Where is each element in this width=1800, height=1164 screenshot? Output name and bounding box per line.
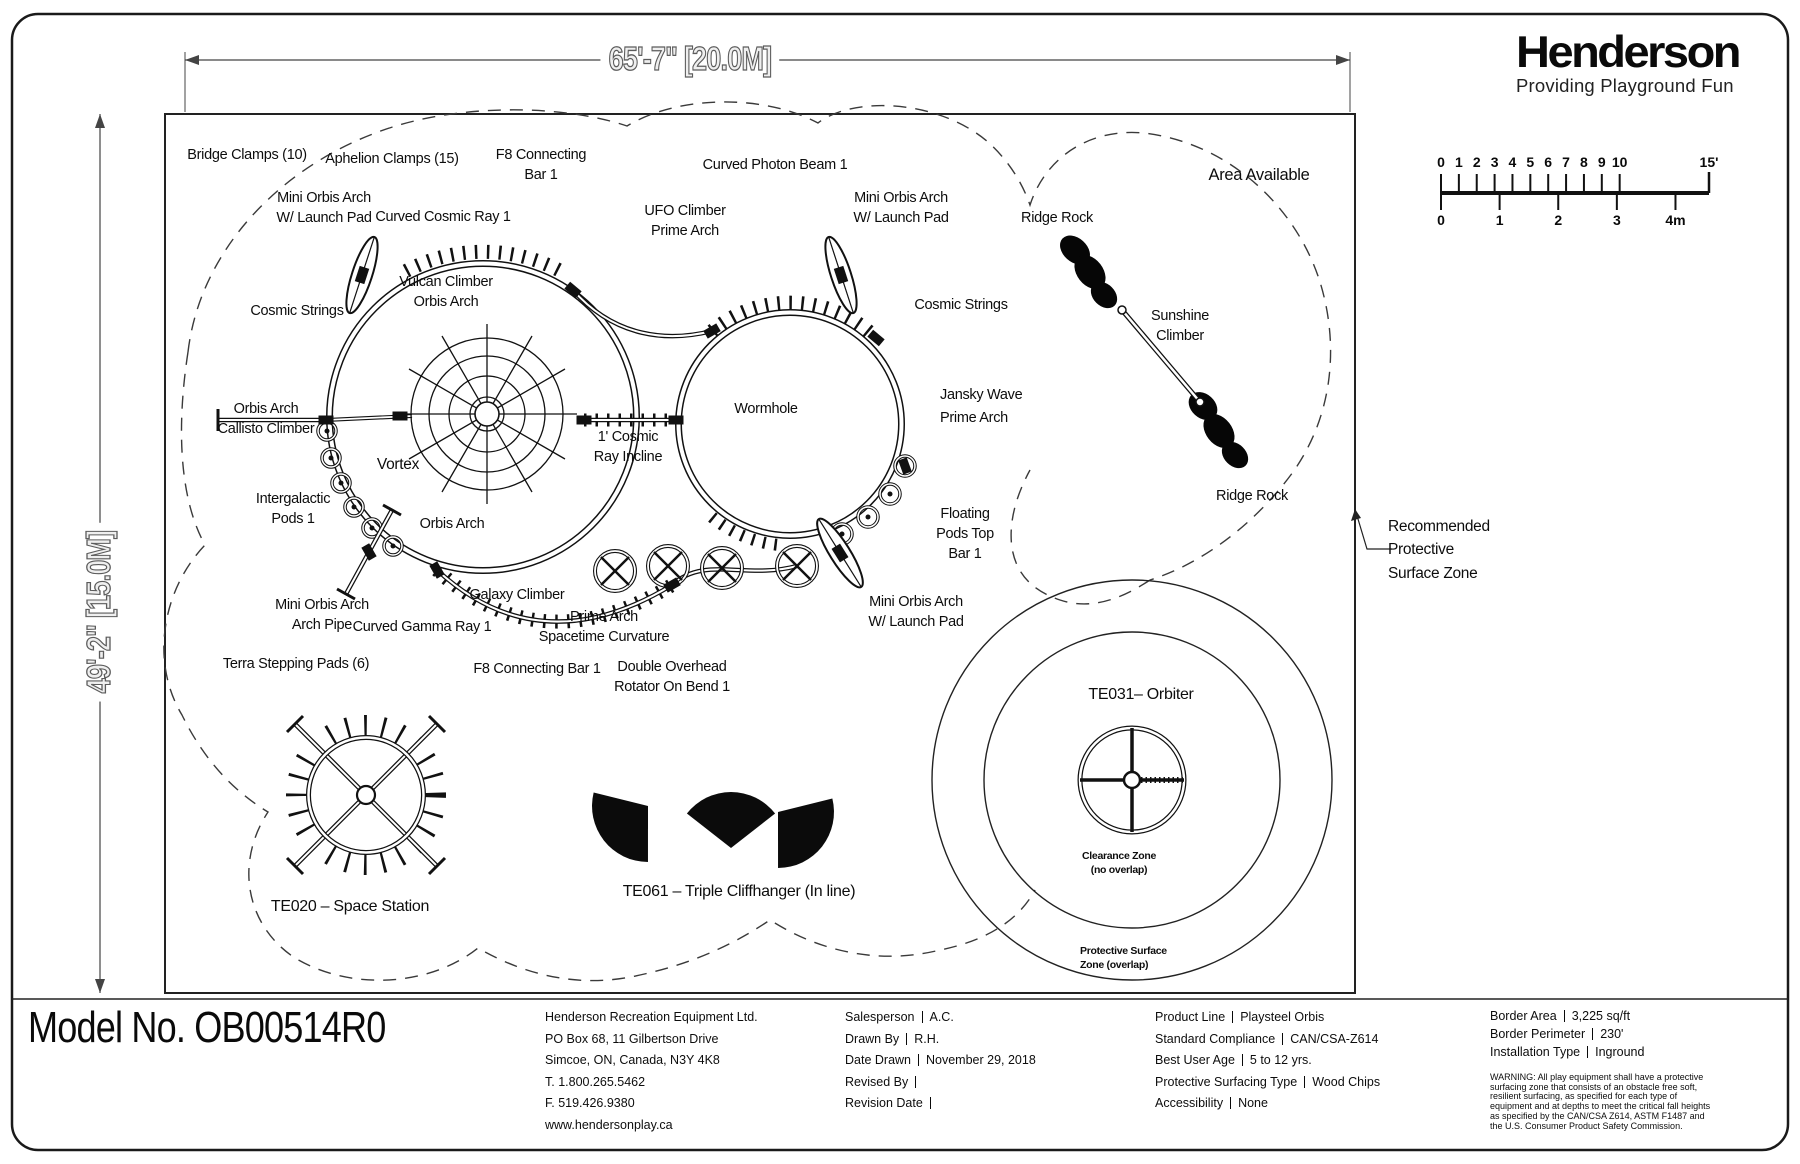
- spec-divider: [922, 1011, 923, 1023]
- spec-value: A.C.: [930, 1010, 954, 1024]
- plan-label: Curved Cosmic Ray 1: [375, 207, 510, 227]
- plan-label: Area Available: [1209, 164, 1310, 187]
- spec-label: Product Line: [1155, 1010, 1225, 1024]
- plan-label: Curved Photon Beam 1: [703, 155, 848, 175]
- plan-label: Curved Gamma Ray 1: [353, 617, 492, 637]
- plan-label: TE020 – Space Station: [271, 896, 429, 918]
- plan-label: Sunshine Climber: [1151, 306, 1209, 346]
- project-info-column: SalespersonA.C.Drawn ByR.H.Date DrawnNov…: [845, 1007, 1036, 1115]
- company-info: Henderson Recreation Equipment Ltd.PO Bo…: [545, 1007, 758, 1136]
- plan-label: Bridge Clamps (10): [187, 145, 307, 165]
- spec-value: 3,225 sq/ft: [1572, 1009, 1630, 1023]
- dimension-width-label: 65'-7" [20.0M]: [600, 40, 779, 78]
- spec-label: Installation Type: [1490, 1045, 1580, 1059]
- plan-label: Mini Orbis Arch W/ Launch Pad: [276, 188, 371, 228]
- spec-label: Revised By: [845, 1075, 908, 1089]
- spec-row: Revision Date: [845, 1093, 1036, 1115]
- page-border: [12, 14, 1788, 1150]
- spec-label: Drawn By: [845, 1032, 899, 1046]
- plan-label: TE031– Orbiter: [1088, 684, 1193, 706]
- plan-label: Cosmic Strings: [914, 295, 1007, 315]
- spec-row: Revised By: [845, 1072, 1036, 1094]
- spec-row: Protective Surfacing TypeWood Chips: [1155, 1072, 1380, 1094]
- spec-divider: [906, 1033, 907, 1045]
- plan-label: Protective Surface Zone (overlap): [1080, 944, 1167, 973]
- spec-value: 5 to 12 yrs.: [1250, 1053, 1312, 1067]
- scale-number: 4: [1509, 154, 1517, 170]
- scale-number: 5: [1526, 154, 1534, 170]
- spec-divider: [1242, 1054, 1243, 1066]
- scale-number: 0: [1437, 212, 1445, 228]
- scale-number: 2: [1473, 154, 1481, 170]
- spec-row: Product LinePlaysteel Orbis: [1155, 1007, 1380, 1029]
- company-info-line: F. 519.426.9380: [545, 1093, 758, 1115]
- plan-label: UFO Climber Prime Arch: [644, 201, 725, 241]
- spec-value: Playsteel Orbis: [1240, 1010, 1324, 1024]
- drawing-sheet: Bridge Clamps (10)Aphelion Clamps (15)F8…: [0, 0, 1800, 1164]
- scale-number: 10: [1612, 154, 1628, 170]
- spec-label: Best User Age: [1155, 1053, 1235, 1067]
- scale-number: 3: [1613, 212, 1621, 228]
- plan-label: Double Overhead Rotator On Bend 1: [614, 657, 730, 697]
- spec-label: Standard Compliance: [1155, 1032, 1275, 1046]
- spec-divider: [1592, 1028, 1593, 1040]
- spec-value: R.H.: [914, 1032, 939, 1046]
- henderson-logo: Henderson Providing Playground Fun: [1516, 24, 1756, 97]
- space-station: [287, 716, 445, 874]
- plan-label: Floating Pods Top Bar 1: [936, 504, 994, 564]
- spec-label: Border Area: [1490, 1009, 1557, 1023]
- scale-number: 9: [1598, 154, 1606, 170]
- plan-label: Wormhole: [734, 399, 797, 419]
- plan-label: Vulcan Climber Orbis Arch: [399, 272, 493, 312]
- plan-drawing: [0, 0, 1800, 1164]
- orbiter-wheel: [1080, 728, 1184, 832]
- spec-divider: [1230, 1097, 1231, 1109]
- scale-number: 4m: [1665, 212, 1685, 228]
- scale-number: 6: [1544, 154, 1552, 170]
- plan-label: TE061 – Triple Cliffhanger (In line): [623, 881, 856, 903]
- plan-label: Ridge Rock: [1216, 486, 1288, 506]
- plan-label: Orbis Arch Callisto Climber: [218, 399, 315, 439]
- scale-number: 7: [1562, 154, 1570, 170]
- plan-label: F8 Connecting Bar 1: [473, 659, 600, 679]
- spec-label: Revision Date: [845, 1096, 923, 1110]
- spec-divider: [1232, 1011, 1233, 1023]
- spec-value: Wood Chips: [1312, 1075, 1380, 1089]
- plan-label: Jansky Wave Prime Arch: [940, 384, 1022, 431]
- scale-number: 0: [1437, 154, 1445, 170]
- plan-label: Aphelion Clamps (15): [325, 149, 458, 169]
- spec-value: November 29, 2018: [926, 1053, 1036, 1067]
- spec-row: Standard ComplianceCAN/CSA-Z614: [1155, 1029, 1380, 1051]
- scale-number: 1: [1496, 212, 1504, 228]
- plan-label: Cosmic Strings: [250, 301, 343, 321]
- plan-label: Terra Stepping Pads (6): [223, 654, 369, 674]
- spec-row: Border Area3,225 sq/ft: [1490, 1007, 1644, 1025]
- plan-label: Galaxy Climber: [470, 585, 565, 605]
- logo-tagline: Providing Playground Fun: [1516, 75, 1756, 97]
- company-info-line: T. 1.800.265.5462: [545, 1072, 758, 1094]
- plan-label: Orbis Arch: [420, 514, 485, 534]
- spec-row: AccessibilityNone: [1155, 1093, 1380, 1115]
- company-info-line: www.hendersonplay.ca: [545, 1115, 758, 1137]
- plan-label: Vortex: [377, 454, 419, 475]
- logo-wordmark: Henderson: [1516, 25, 1756, 77]
- spec-label: Protective Surfacing Type: [1155, 1075, 1297, 1089]
- plan-label: Mini Orbis Arch W/ Launch Pad: [868, 592, 963, 632]
- company-info-line: Henderson Recreation Equipment Ltd.: [545, 1007, 758, 1029]
- plan-label: Recommended Protective Surface Zone: [1388, 515, 1490, 585]
- spec-row: Drawn ByR.H.: [845, 1029, 1036, 1051]
- scale-number: 8: [1580, 154, 1588, 170]
- spec-value: CAN/CSA-Z614: [1290, 1032, 1378, 1046]
- spec-value: Inground: [1595, 1045, 1644, 1059]
- company-info-line: PO Box 68, 11 Gilbertson Drive: [545, 1029, 758, 1051]
- company-info-line: Simcoe, ON, Canada, N3Y 4K8: [545, 1050, 758, 1072]
- spec-row: Border Perimeter230': [1490, 1025, 1644, 1043]
- spec-label: Date Drawn: [845, 1053, 911, 1067]
- model-number: Model No. OB00514R0: [28, 1003, 385, 1053]
- scale-number: 3: [1491, 154, 1499, 170]
- spec-row: Date DrawnNovember 29, 2018: [845, 1050, 1036, 1072]
- plan-label: Ridge Rock: [1021, 208, 1093, 228]
- scale-number: 2: [1554, 212, 1562, 228]
- spec-row: Installation TypeInground: [1490, 1043, 1644, 1061]
- plan-label: Prime Arch Spacetime Curvature: [539, 607, 670, 647]
- plan-label: Mini Orbis Arch W/ Launch Pad: [853, 188, 948, 228]
- spec-divider: [1587, 1046, 1588, 1058]
- spec-divider: [915, 1076, 916, 1088]
- plan-label: Intergalactic Pods 1: [256, 489, 330, 529]
- scale-number: 1: [1455, 154, 1463, 170]
- scale-number: 15': [1700, 154, 1719, 170]
- spec-value: None: [1238, 1096, 1268, 1110]
- spec-label: Accessibility: [1155, 1096, 1223, 1110]
- site-info-column: Border Area3,225 sq/ftBorder Perimeter23…: [1490, 1007, 1644, 1061]
- plan-label: 1' Cosmic Ray Incline: [594, 427, 662, 467]
- spec-value: 230': [1600, 1027, 1623, 1041]
- dimension-height-label: 49'-2" [15.0M]: [80, 522, 118, 701]
- product-info-column: Product LinePlaysteel OrbisStandard Comp…: [1155, 1007, 1380, 1115]
- spec-label: Border Perimeter: [1490, 1027, 1585, 1041]
- spec-divider: [1304, 1076, 1305, 1088]
- plan-label: Clearance Zone (no overlap): [1082, 849, 1156, 878]
- spec-label: Salesperson: [845, 1010, 915, 1024]
- spec-row: Best User Age5 to 12 yrs.: [1155, 1050, 1380, 1072]
- plan-label: F8 Connecting Bar 1: [496, 145, 586, 185]
- spec-divider: [1282, 1033, 1283, 1045]
- spec-divider: [918, 1054, 919, 1066]
- spec-divider: [1564, 1010, 1565, 1022]
- warning-text: WARNING: All play equipment shall have a…: [1490, 1073, 1716, 1131]
- spec-row: SalespersonA.C.: [845, 1007, 1036, 1029]
- spec-divider: [930, 1097, 931, 1109]
